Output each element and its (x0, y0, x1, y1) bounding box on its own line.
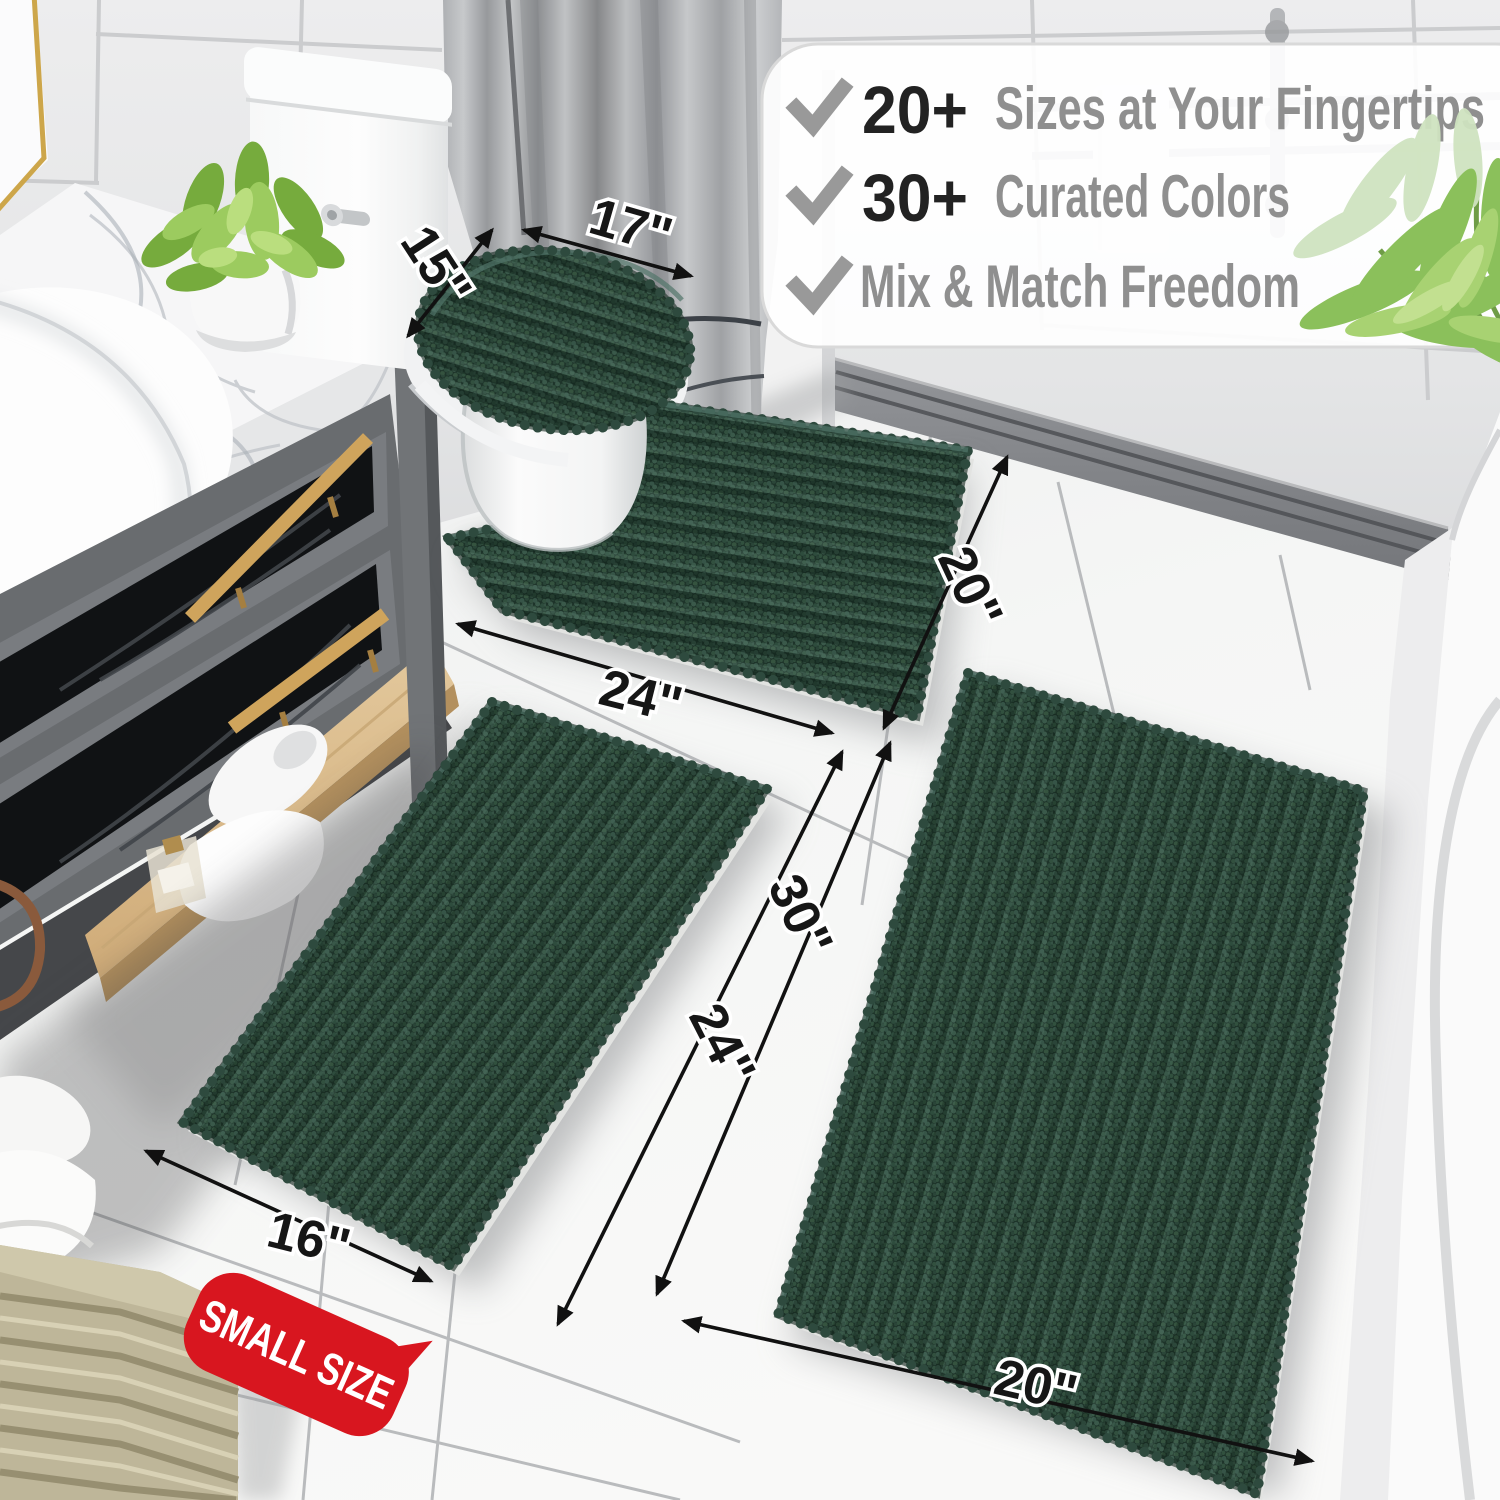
svg-text:30+: 30+ (862, 161, 968, 236)
svg-text:Curated Colors: Curated Colors (995, 163, 1290, 230)
svg-text:Mix & Match Freedom: Mix & Match Freedom (860, 253, 1300, 320)
svg-text:Sizes at Your Fingertips: Sizes at Your Fingertips (995, 75, 1485, 142)
svg-text:20+: 20+ (862, 73, 968, 148)
